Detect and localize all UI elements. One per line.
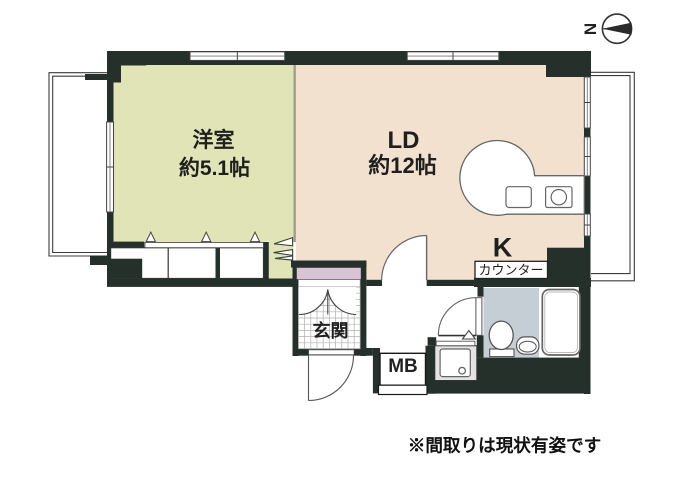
svg-text:洋室: 洋室 <box>193 128 235 152</box>
svg-text:※間取りは現状有姿です: ※間取りは現状有姿です <box>408 436 602 456</box>
svg-text:MB: MB <box>388 356 418 377</box>
svg-text:玄関: 玄関 <box>313 320 349 341</box>
svg-text:約5.1帖: 約5.1帖 <box>179 156 250 180</box>
svg-text:K: K <box>493 233 513 263</box>
svg-text:N: N <box>581 23 600 35</box>
svg-text:LD: LD <box>388 127 420 154</box>
svg-text:約12帖: 約12帖 <box>368 153 436 178</box>
svg-text:カウンター: カウンター <box>478 263 543 278</box>
